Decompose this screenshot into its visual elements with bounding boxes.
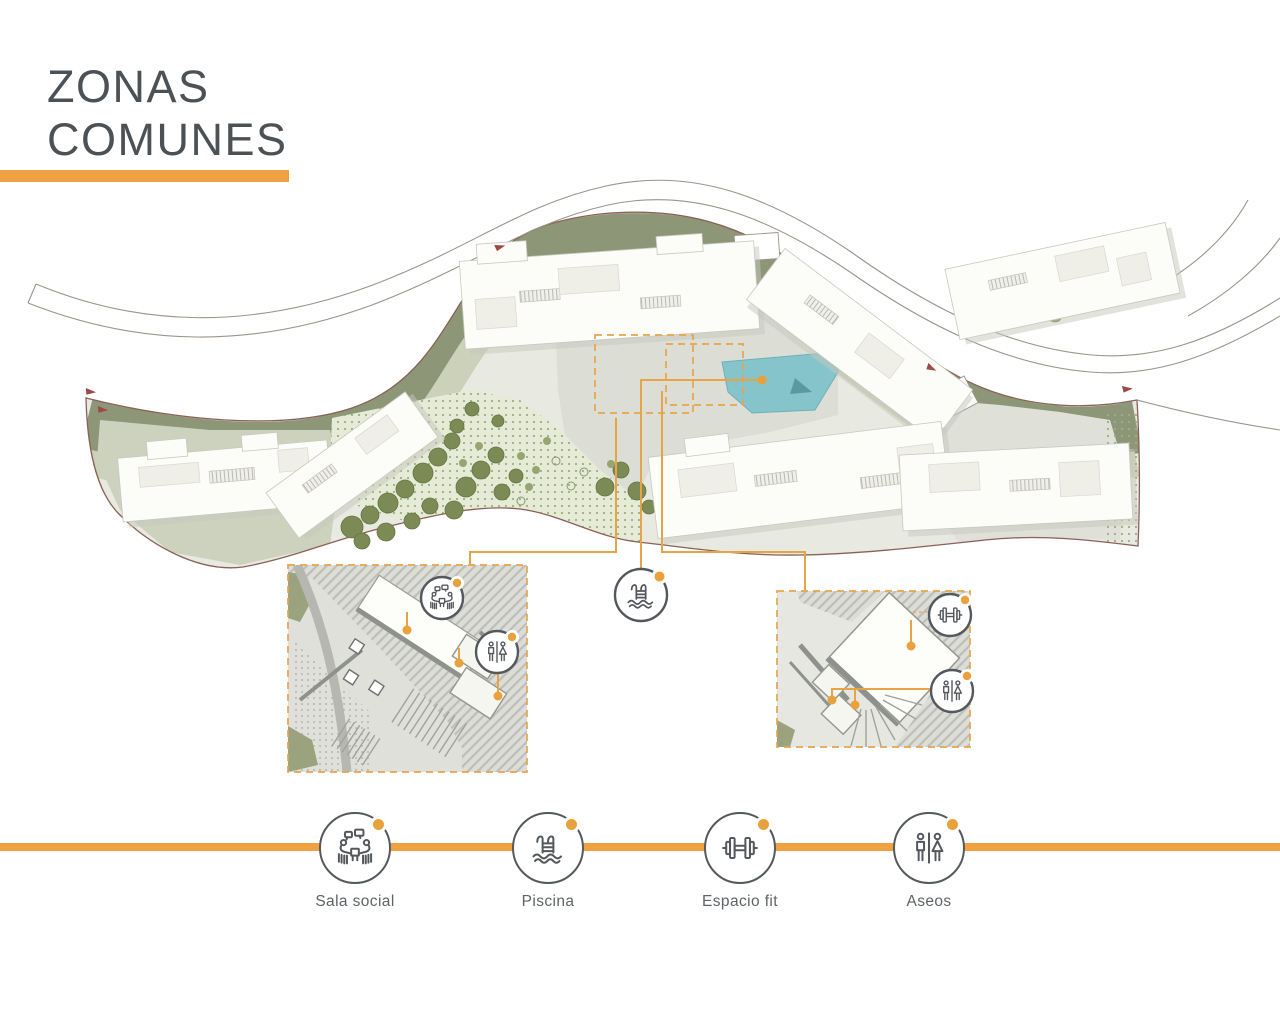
legend-accent-dot (944, 816, 961, 833)
pool-ladder-icon (525, 825, 571, 871)
legend-item-piscina: Piscina (468, 812, 628, 911)
marker-dot (851, 701, 860, 710)
pool-marker-dot (758, 376, 767, 385)
sala-social-callout-icon (421, 576, 464, 619)
building-top-right (945, 221, 1186, 345)
aseos-left-callout-icon (476, 630, 519, 673)
legend-label: Aseos (849, 893, 1009, 911)
legend-circle (319, 812, 391, 884)
left-detail-inset (288, 565, 527, 772)
legend-label: Sala social (275, 893, 435, 911)
meeting-icon (332, 825, 378, 871)
restroom-icon (906, 825, 952, 871)
marker-dot (828, 696, 837, 705)
espacio-fit-marker-dot (907, 642, 916, 651)
site-plan (0, 0, 1280, 1024)
legend-circle (893, 812, 965, 884)
legend-item-sala-social: Sala social (275, 812, 435, 911)
page: ZONAS COMUNES (0, 0, 1280, 1024)
legend-accent-dot (563, 816, 580, 833)
aseos-marker-dot (494, 692, 503, 701)
building-southeast (899, 443, 1138, 537)
legend-line (0, 843, 1280, 851)
legend-circle (512, 812, 584, 884)
legend-item-aseos: Aseos (849, 812, 1009, 911)
dumbbell-icon (717, 825, 763, 871)
legend-label: Piscina (468, 893, 628, 911)
right-detail-inset (777, 591, 974, 748)
piscina-callout-icon (615, 569, 668, 622)
legend-item-espacio-fit: Espacio fit (660, 812, 820, 911)
legend-circle (704, 812, 776, 884)
sala-social-marker-dot (403, 626, 412, 635)
marker-dot (455, 659, 464, 668)
espacio-fit-callout-icon (929, 593, 972, 636)
aseos-right-callout-icon (931, 669, 974, 712)
legend-label: Espacio fit (660, 893, 820, 911)
legend-accent-dot (370, 816, 387, 833)
legend-accent-dot (755, 816, 772, 833)
